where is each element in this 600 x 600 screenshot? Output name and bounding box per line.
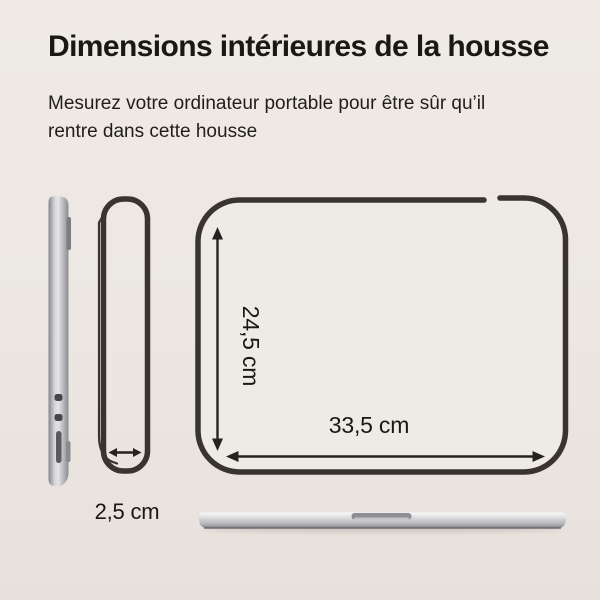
width-dimension-label: 33,5 cm: [299, 412, 439, 439]
laptop-side-view: [49, 197, 72, 487]
product-dimension-image: { "header": { "title": "Dimensions intér…: [0, 0, 600, 600]
sleeve-side-body: [104, 199, 148, 471]
usb-port-icon: [55, 414, 63, 421]
laptop-foot: [66, 441, 71, 462]
depth-dimension-label: 2,5 cm: [57, 499, 197, 525]
depth-arrow-icon: [109, 448, 142, 457]
usb-port-icon: [55, 394, 63, 401]
sleeve-side-outline: [99, 199, 148, 471]
lid-notch-highlight: [354, 518, 409, 520]
vent-slot: [56, 431, 62, 463]
laptop-lid-edge: [67, 217, 72, 250]
laptop-front-view: [199, 513, 566, 533]
height-dimension-label: 24,5 cm: [238, 286, 264, 406]
